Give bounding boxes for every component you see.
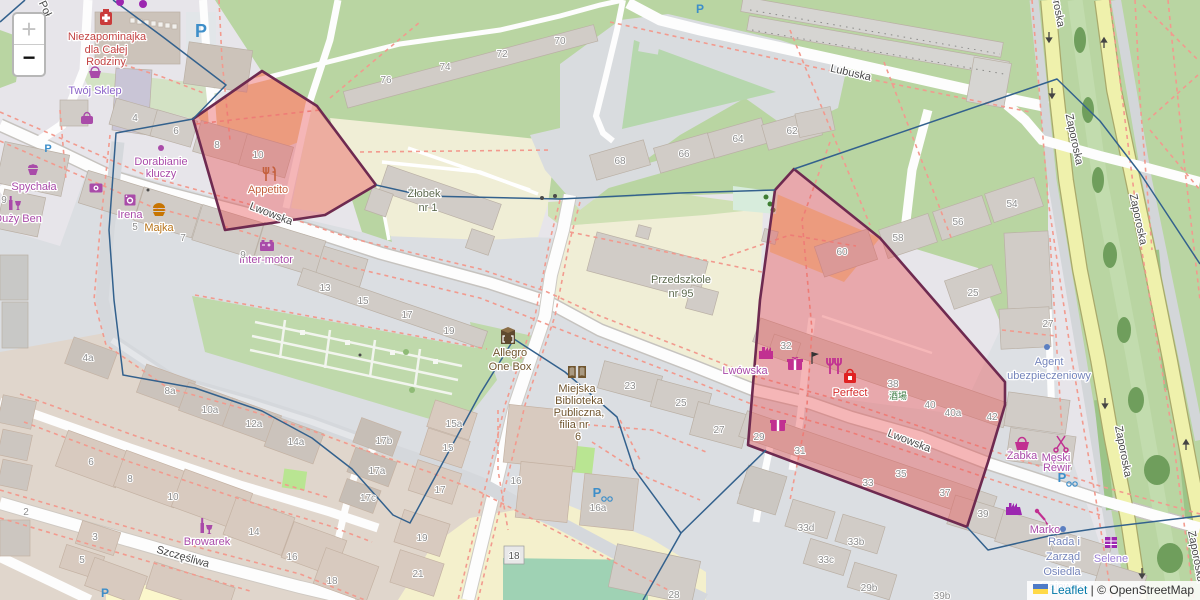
svg-text:70: 70 <box>554 36 566 47</box>
svg-text:37: 37 <box>939 488 951 499</box>
svg-text:25: 25 <box>675 398 687 409</box>
svg-text:Zarząd: Zarząd <box>1046 551 1080 563</box>
svg-text:17b: 17b <box>376 436 393 447</box>
svg-text:27: 27 <box>713 425 725 436</box>
svg-text:39b: 39b <box>934 591 951 600</box>
svg-text:66: 66 <box>678 149 690 160</box>
svg-text:6: 6 <box>575 431 581 443</box>
svg-text:2: 2 <box>23 507 29 518</box>
svg-text:8: 8 <box>214 140 220 151</box>
svg-text:8: 8 <box>127 474 133 485</box>
svg-text:Browarek: Browarek <box>184 536 231 548</box>
svg-text:Lwówska: Lwówska <box>722 365 768 377</box>
svg-text:Biblioteka: Biblioteka <box>555 395 604 407</box>
svg-text:P: P <box>44 143 51 155</box>
svg-text:16: 16 <box>510 476 522 487</box>
svg-text:35: 35 <box>895 469 907 480</box>
svg-text:18: 18 <box>326 576 338 587</box>
svg-text:33c: 33c <box>818 555 834 566</box>
svg-text:64: 64 <box>732 134 744 145</box>
svg-text:Twój Sklep: Twój Sklep <box>68 85 121 97</box>
svg-text:17: 17 <box>434 485 446 496</box>
svg-text:19: 19 <box>443 326 455 337</box>
svg-text:Perfect: Perfect <box>833 387 868 399</box>
svg-text:29b: 29b <box>861 583 878 594</box>
svg-text:60: 60 <box>836 247 848 258</box>
svg-text:31: 31 <box>794 446 806 457</box>
svg-text:27: 27 <box>1042 319 1054 330</box>
svg-text:33d: 33d <box>798 523 815 534</box>
svg-text:15a: 15a <box>446 419 463 430</box>
svg-text:Irena: Irena <box>117 209 143 221</box>
svg-text:39: 39 <box>977 509 989 520</box>
svg-text:17c: 17c <box>360 493 376 504</box>
svg-text:P: P <box>696 2 704 16</box>
svg-text:10: 10 <box>252 150 264 161</box>
svg-text:72: 72 <box>496 49 508 60</box>
svg-text:Inter-motor: Inter-motor <box>239 254 293 266</box>
svg-text:21: 21 <box>412 569 424 580</box>
svg-text:Selene: Selene <box>1094 553 1128 565</box>
svg-text:29: 29 <box>753 432 765 443</box>
svg-text:6: 6 <box>88 457 94 468</box>
svg-text:10: 10 <box>167 492 179 503</box>
svg-text:Osiedla: Osiedla <box>1043 566 1081 578</box>
svg-text:5: 5 <box>132 222 138 233</box>
svg-text:14: 14 <box>248 527 260 538</box>
svg-text:3: 3 <box>92 532 98 543</box>
svg-text:Majka: Majka <box>144 222 174 234</box>
svg-text:Żłobek: Żłobek <box>407 187 441 200</box>
svg-text:15: 15 <box>442 443 454 454</box>
svg-text:Rada i: Rada i <box>1048 536 1080 548</box>
svg-text:17: 17 <box>401 310 413 321</box>
svg-text:filia nr: filia nr <box>559 419 589 431</box>
svg-text:Spychała: Spychała <box>11 181 57 193</box>
svg-text:Przedszkole: Przedszkole <box>651 274 711 286</box>
svg-text:19: 19 <box>416 533 428 544</box>
svg-text:dla Całej: dla Całej <box>85 44 128 56</box>
svg-text:P: P <box>593 485 602 500</box>
svg-text:Miejska: Miejska <box>558 383 596 395</box>
svg-text:P: P <box>1058 470 1067 485</box>
svg-text:4: 4 <box>132 113 138 124</box>
svg-text:9: 9 <box>1 195 7 206</box>
svg-text:62: 62 <box>786 126 798 137</box>
svg-text:15: 15 <box>357 296 369 307</box>
svg-text:kluczy: kluczy <box>146 168 177 180</box>
svg-text:40: 40 <box>924 400 936 411</box>
svg-text:28: 28 <box>668 590 680 600</box>
svg-text:5: 5 <box>79 555 85 566</box>
svg-text:酒場: 酒場 <box>889 390 907 401</box>
svg-text:P: P <box>101 586 109 600</box>
svg-text:One Box: One Box <box>489 361 532 373</box>
svg-text:Publiczna,: Publiczna, <box>554 407 605 419</box>
svg-text:Żabka: Żabka <box>1007 449 1038 462</box>
svg-text:25: 25 <box>967 288 979 299</box>
svg-text:68: 68 <box>614 156 626 167</box>
svg-text:Rodziny: Rodziny <box>86 56 126 68</box>
svg-text:7: 7 <box>180 233 186 244</box>
svg-text:P: P <box>195 21 207 41</box>
svg-text:32: 32 <box>780 341 792 352</box>
svg-text:76: 76 <box>380 75 392 86</box>
svg-text:23: 23 <box>624 381 636 392</box>
svg-text:54: 54 <box>1006 199 1018 210</box>
svg-text:4a: 4a <box>82 353 94 364</box>
svg-text:74: 74 <box>439 62 451 73</box>
svg-text:14a: 14a <box>288 437 305 448</box>
svg-text:12a: 12a <box>246 419 263 430</box>
svg-text:6: 6 <box>173 126 179 137</box>
svg-text:18: 18 <box>508 551 520 562</box>
svg-text:58: 58 <box>892 233 904 244</box>
svg-text:9: 9 <box>240 250 246 261</box>
svg-text:Dorabianie: Dorabianie <box>134 156 187 168</box>
svg-text:40a: 40a <box>945 408 962 419</box>
svg-text:17a: 17a <box>369 466 386 477</box>
svg-text:Allegro: Allegro <box>493 347 527 359</box>
svg-text:Agent: Agent <box>1035 356 1064 368</box>
svg-text:16a: 16a <box>590 503 607 514</box>
svg-text:33b: 33b <box>848 537 865 548</box>
svg-text:8a: 8a <box>164 386 176 397</box>
svg-text:nr 95: nr 95 <box>668 288 693 300</box>
svg-text:ubezpieczeniowy: ubezpieczeniowy <box>1007 370 1091 382</box>
svg-text:Niezapominajka: Niezapominajka <box>68 31 147 43</box>
svg-text:38: 38 <box>887 379 899 390</box>
svg-text:13: 13 <box>319 283 331 294</box>
svg-text:42: 42 <box>986 412 998 423</box>
svg-text:nr 1: nr 1 <box>419 202 438 214</box>
svg-text:56: 56 <box>952 217 964 228</box>
svg-text:10a: 10a <box>202 405 219 416</box>
svg-text:Appetito: Appetito <box>248 184 288 196</box>
svg-text:33: 33 <box>862 478 874 489</box>
svg-text:Duży Ben: Duży Ben <box>0 213 42 225</box>
svg-text:Marko: Marko <box>1030 524 1061 536</box>
svg-text:16: 16 <box>286 552 298 563</box>
